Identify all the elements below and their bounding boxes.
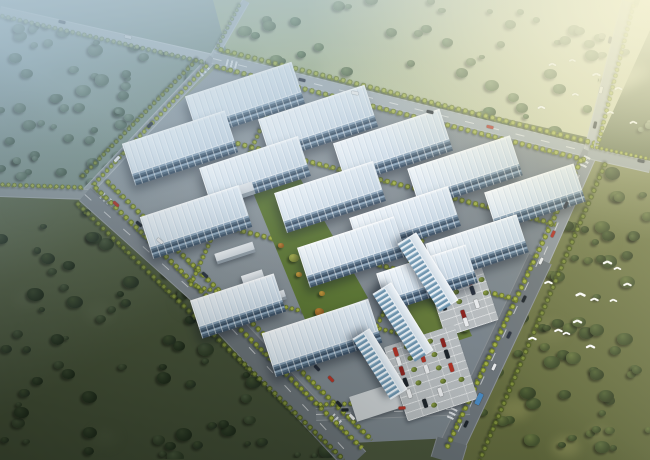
tree-clump — [345, 4, 351, 9]
tree-clump — [118, 91, 129, 100]
tree-clump — [638, 127, 644, 132]
tree-clump — [319, 291, 325, 296]
tree-clump — [108, 306, 117, 313]
tree-clump — [41, 253, 55, 264]
tree-clump — [485, 80, 499, 91]
tree-clump — [487, 9, 493, 14]
tree-clump — [95, 74, 110, 85]
tree-clump — [295, 452, 301, 457]
tree-clump — [186, 380, 196, 388]
tree-clump — [297, 51, 306, 58]
tree-clump — [407, 60, 416, 67]
tree-clump — [5, 137, 15, 145]
tree-clump — [159, 364, 167, 370]
tree-clump — [314, 43, 324, 51]
flying-bird — [572, 92, 578, 96]
tree-clump — [598, 52, 606, 58]
tree-clump — [121, 82, 131, 90]
tree-clump — [32, 156, 38, 161]
flying-bird — [554, 328, 562, 333]
tree-clump — [442, 38, 453, 47]
tree-clump — [21, 69, 33, 78]
tree-clump — [524, 434, 540, 446]
tree-clump — [571, 255, 579, 261]
tree-clump — [559, 390, 571, 399]
tree-clump — [590, 369, 604, 380]
vehicle — [341, 408, 348, 411]
tree-clump — [508, 93, 519, 102]
tree-clump — [23, 346, 31, 352]
tree-clump — [44, 39, 53, 46]
tree-clump — [645, 122, 650, 129]
tree-clump — [629, 234, 638, 241]
parked-car — [448, 363, 455, 373]
parked-car — [423, 364, 430, 374]
tree-clump — [27, 288, 44, 301]
tree-clump — [438, 8, 445, 14]
tree-clump — [575, 27, 585, 35]
flying-bird — [629, 120, 636, 125]
flying-bird — [609, 298, 616, 303]
tree-clump — [479, 55, 485, 60]
tree-clump — [584, 257, 593, 264]
tree-clump — [14, 103, 26, 113]
tree-clump — [617, 333, 633, 345]
tree-clump — [83, 427, 97, 438]
tree-clump — [198, 343, 214, 355]
tree-clump — [583, 105, 592, 112]
tree-clump — [63, 261, 75, 270]
tree-clump — [64, 134, 74, 142]
tree-clump — [585, 50, 599, 61]
flying-bird — [548, 62, 555, 67]
tree-clump — [19, 389, 30, 398]
tree-clump — [639, 192, 647, 198]
tree-clump — [1, 345, 12, 354]
tree-clump — [38, 120, 45, 126]
tree-clump — [533, 17, 540, 23]
parking-tree — [478, 276, 485, 283]
tree-clump — [208, 422, 217, 429]
ground-patch — [621, 63, 650, 83]
parking-tree — [482, 290, 489, 297]
flying-bird — [586, 343, 595, 349]
tree-clump — [632, 366, 642, 374]
tree-clump — [421, 25, 431, 33]
parking-tree — [435, 365, 442, 372]
tree-clump — [153, 435, 165, 445]
tree-clump — [592, 239, 600, 245]
parking-tree — [431, 351, 438, 358]
tree-clump — [251, 32, 259, 39]
tree-clump — [115, 109, 122, 114]
tree-clump — [523, 114, 530, 119]
tree-clump — [602, 231, 615, 242]
parked-car — [422, 398, 429, 408]
tree-clump — [341, 67, 353, 76]
tree-clump — [278, 243, 284, 247]
tree-clump — [67, 296, 82, 308]
tree-clump — [31, 42, 38, 47]
parked-car — [396, 356, 403, 366]
tree-clump — [540, 343, 550, 351]
tree-clump — [241, 394, 252, 403]
tree-clump — [32, 377, 43, 385]
tree-clump — [167, 451, 183, 460]
tree-clump — [13, 157, 21, 163]
flying-bird — [614, 86, 621, 91]
tree-clump — [91, 127, 98, 132]
tree-clump — [257, 438, 268, 447]
tree-clump — [642, 212, 650, 221]
tree-clump — [117, 291, 125, 297]
tree-clump — [123, 276, 139, 288]
tree-clump — [290, 17, 302, 26]
tree-clump — [48, 268, 57, 275]
tree-clump — [69, 66, 79, 74]
ground-patch — [48, 68, 72, 84]
tree-clump — [568, 435, 577, 442]
tree-clump — [82, 391, 97, 402]
parked-car — [392, 347, 399, 357]
flying-bird — [569, 58, 575, 62]
tree-clump — [312, 453, 319, 458]
tree-clump — [16, 172, 27, 180]
flying-bird — [623, 282, 631, 287]
tree-clump — [29, 26, 37, 32]
tree-clump — [605, 167, 621, 179]
tree-clump — [50, 94, 61, 103]
flying-bird — [590, 297, 598, 302]
tree-clump — [60, 104, 70, 112]
aerial-rendering-industrial-park — [0, 0, 650, 460]
flying-bird — [575, 291, 585, 297]
parked-car — [469, 286, 476, 296]
tree-clump — [84, 447, 94, 455]
tree-clump — [13, 330, 23, 338]
tree-clump — [263, 21, 276, 31]
tree-clump — [466, 58, 476, 66]
tree-clump — [238, 26, 251, 37]
tree-clump — [333, 1, 345, 10]
tree-clump — [34, 247, 42, 253]
tree-clump — [74, 103, 85, 112]
tree-clump — [176, 428, 192, 440]
flying-bird — [573, 318, 582, 324]
tree-clump — [584, 40, 595, 48]
tree-clump — [289, 254, 299, 262]
parked-car — [474, 299, 481, 309]
tree-clump — [598, 33, 606, 39]
tree-clump — [456, 68, 468, 78]
tree-clump — [9, 53, 22, 63]
tree-clump — [517, 9, 525, 15]
tree-clump — [245, 441, 251, 446]
tree-clump — [566, 352, 581, 363]
parked-car — [463, 317, 470, 327]
tree-clump — [505, 20, 516, 28]
tree-clump — [51, 124, 57, 129]
tree-clump — [296, 272, 302, 276]
parked-car — [440, 338, 447, 348]
tree-clump — [139, 53, 150, 61]
tree-clump — [193, 441, 203, 449]
parked-car — [444, 349, 451, 359]
flying-bird — [528, 336, 536, 341]
tree-clump — [543, 325, 551, 331]
tree-clump — [497, 41, 506, 48]
tree-clump — [165, 442, 175, 450]
tree-clump — [614, 193, 625, 201]
tree-clump — [526, 398, 541, 410]
tree-clump — [365, 0, 379, 5]
tree-clump — [40, 224, 47, 229]
tree-clump — [581, 226, 589, 232]
tree-clump — [0, 165, 6, 172]
parked-car — [437, 387, 444, 397]
tree-clump — [386, 28, 397, 37]
parking-tree — [430, 402, 437, 409]
tree-clump — [244, 416, 255, 425]
tree-clump — [622, 251, 634, 260]
flying-bird — [592, 72, 600, 77]
tree-clump — [12, 418, 25, 428]
parking-tree — [415, 380, 422, 387]
parking-tree — [439, 378, 446, 385]
tree-clump — [516, 103, 529, 113]
parked-car — [399, 366, 406, 376]
tree-clump — [76, 85, 90, 96]
flying-bird — [544, 280, 552, 285]
tree-clump — [157, 372, 171, 383]
tree-clump — [23, 439, 30, 445]
tree-clump — [605, 427, 615, 435]
vehicle — [398, 406, 405, 409]
tree-clump — [118, 364, 126, 371]
tree-clump — [595, 441, 610, 453]
tree-clump — [121, 299, 130, 306]
flying-bird — [613, 266, 620, 271]
parking-tree — [458, 376, 465, 383]
tree-clump — [544, 69, 557, 79]
tree-clump — [56, 168, 67, 177]
flying-bird — [537, 105, 544, 110]
tree-clump — [552, 319, 564, 328]
tree-clump — [54, 361, 63, 368]
tree-clump — [96, 315, 106, 323]
tree-clump — [599, 390, 614, 402]
tree-clump — [0, 107, 5, 113]
tree-clump — [14, 407, 29, 419]
flying-bird — [603, 259, 612, 265]
tree-clump — [60, 284, 69, 291]
tree-clump — [544, 356, 559, 368]
parking-tree — [410, 366, 417, 373]
tree-clump — [560, 36, 571, 44]
tree-clump — [23, 120, 35, 130]
tree-clump — [427, 0, 435, 5]
tree-clump — [51, 334, 64, 344]
tree-clump — [39, 307, 46, 312]
tree-clump — [85, 136, 95, 144]
flying-bird — [562, 331, 569, 336]
tree-clump — [553, 84, 566, 94]
tree-clump — [590, 324, 605, 335]
tree-clump — [599, 410, 606, 416]
tree-clump — [159, 451, 167, 457]
tree-clump — [0, 234, 8, 244]
tree-clump — [202, 358, 210, 364]
tree-clump — [610, 445, 617, 451]
tree-clump — [414, 30, 423, 37]
tree-clump — [1, 437, 9, 443]
tree-clump — [62, 369, 75, 379]
flying-bird — [607, 110, 613, 114]
tree-clump — [88, 44, 103, 56]
tree-clump — [610, 346, 621, 355]
tree-clump — [645, 427, 650, 433]
parked-car — [406, 389, 413, 399]
